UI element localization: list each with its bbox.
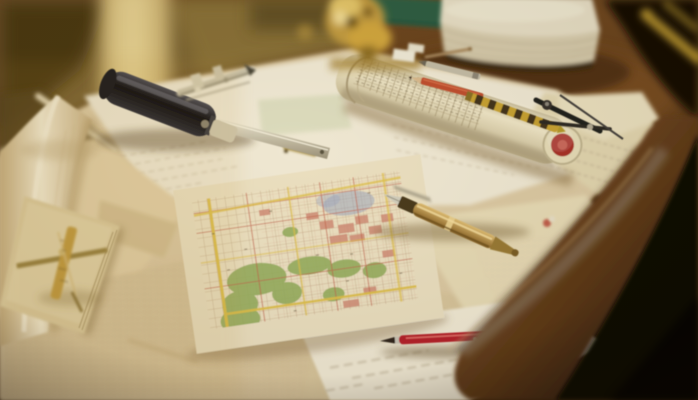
photo-canvas [0,0,698,400]
photo-frame: Vintage city maps and drafting tools spr… [0,0,698,400]
vignette [0,0,698,400]
